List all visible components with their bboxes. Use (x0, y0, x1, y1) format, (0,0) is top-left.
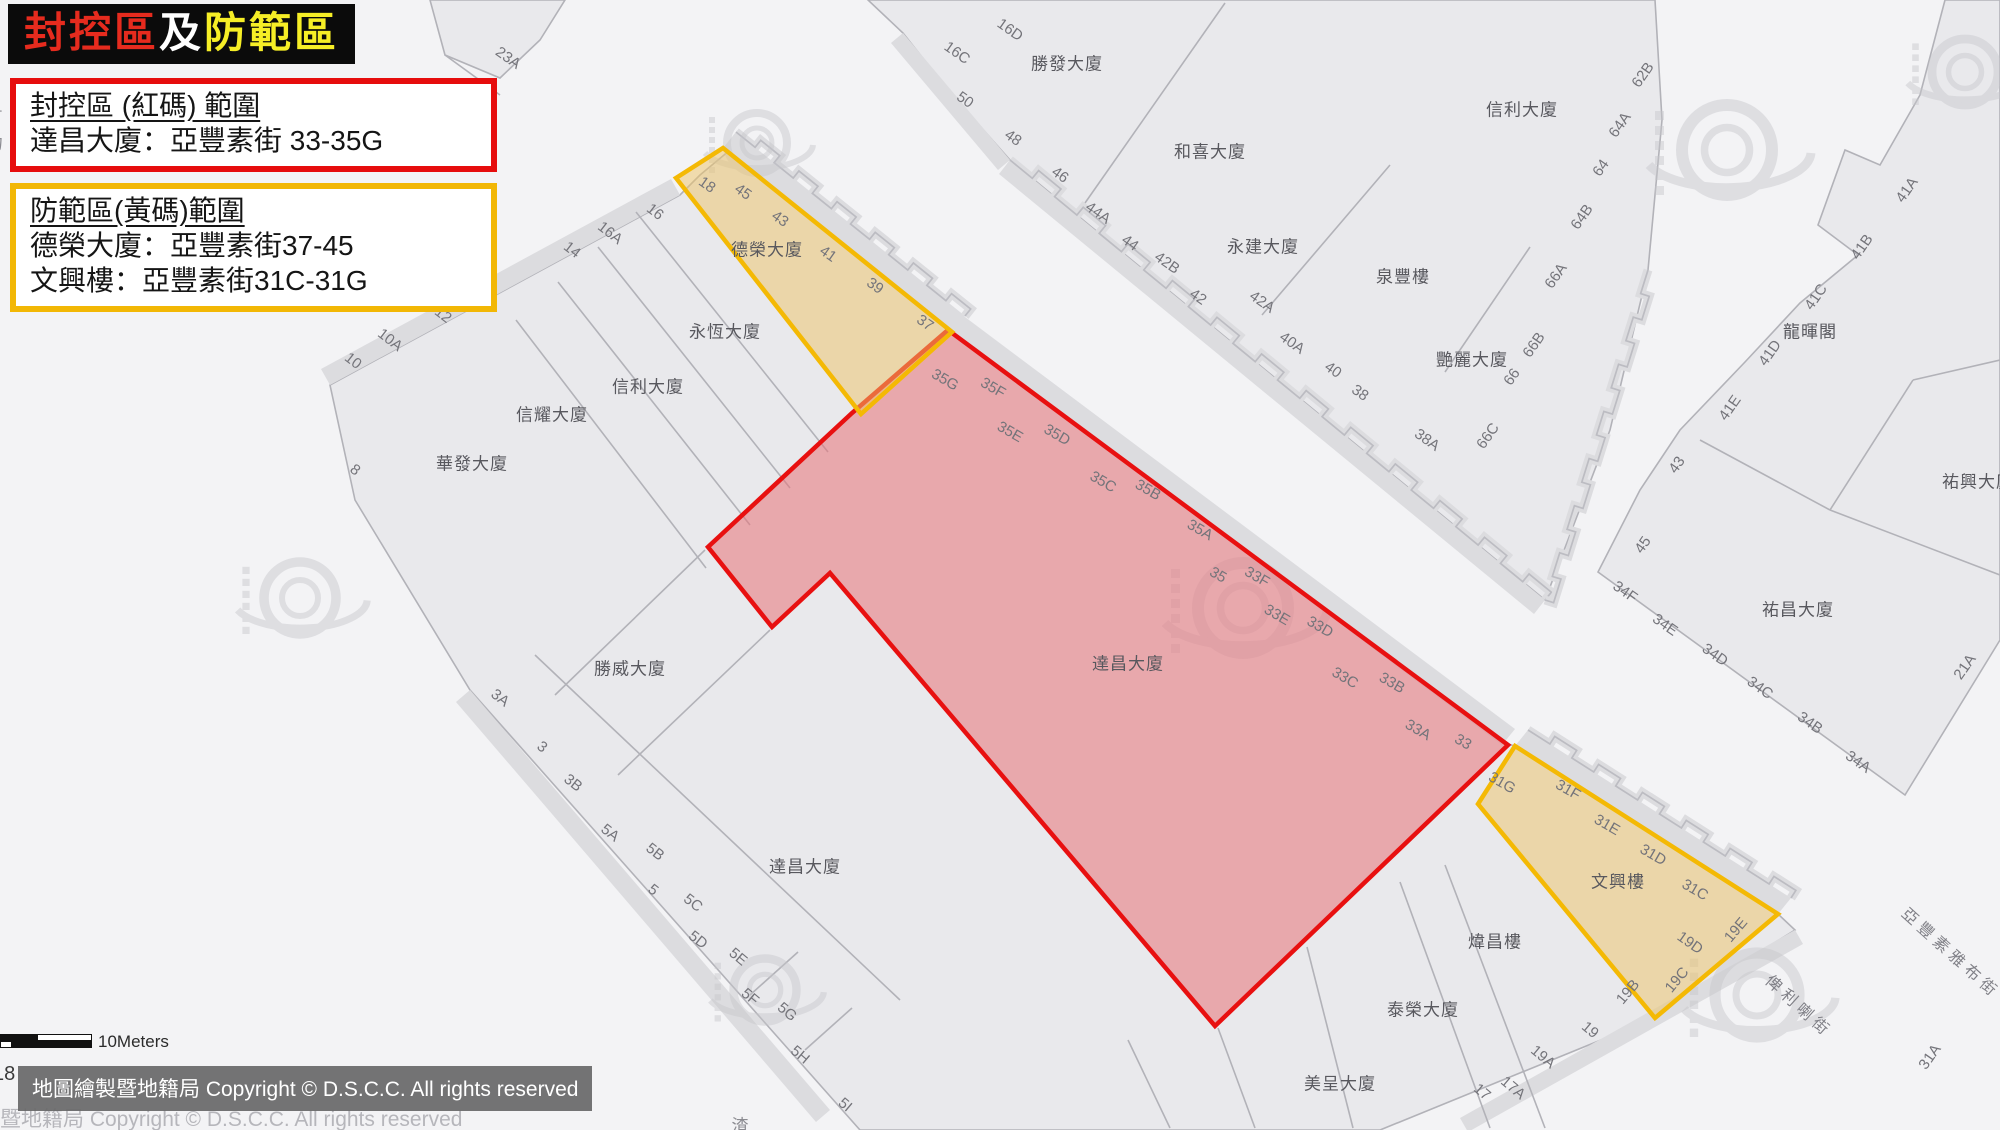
city-block (430, 0, 565, 78)
yellow-zone-legend-line-1: 德榮大廈：亞豐素街37-45 (30, 228, 477, 263)
yellow-zone-legend-heading: 防範區(黃碼)範圍 (30, 193, 477, 228)
page-title: 封控區及防範區 (8, 4, 355, 64)
page-title-part-1: 及 (159, 9, 204, 56)
copyright-bar: 地圖繪製暨地籍局 Copyright © D.S.C.C. All rights… (18, 1066, 592, 1111)
dscc-watermark-logo (238, 562, 368, 634)
scale-bar-label: 10Meters (98, 1032, 169, 1052)
yellow-zone-legend-line-2: 文興樓：亞豐素街31C-31G (30, 263, 477, 298)
dscc-watermark-logo (1649, 105, 1811, 195)
red-zone-legend-heading: 封控區 (紅碼) 範圍 (30, 88, 477, 123)
red-zone-legend-box: 封控區 (紅碼) 範圍 達昌大廈：亞豐素街 33-35G (10, 78, 497, 172)
map-canvas: 勝發大廈和喜大廈永建大廈泉豐樓艷麗大廈信利大廈龍暉閣祐興大廈祐昌大廈永恆大廈信利… (0, 0, 2000, 1130)
red-zone-legend-line: 達昌大廈：亞豐素街 33-35G (30, 123, 477, 158)
yellow-zone-legend-box: 防範區(黃碼)範圍 德榮大廈：亞豐素街37-45 文興樓：亞豐素街31C-31G (10, 183, 497, 312)
page-title-part-2: 防範區 (204, 9, 339, 56)
edge-number-fragment: 18 (0, 1063, 15, 1086)
page-title-part-0: 封控區 (24, 9, 159, 56)
